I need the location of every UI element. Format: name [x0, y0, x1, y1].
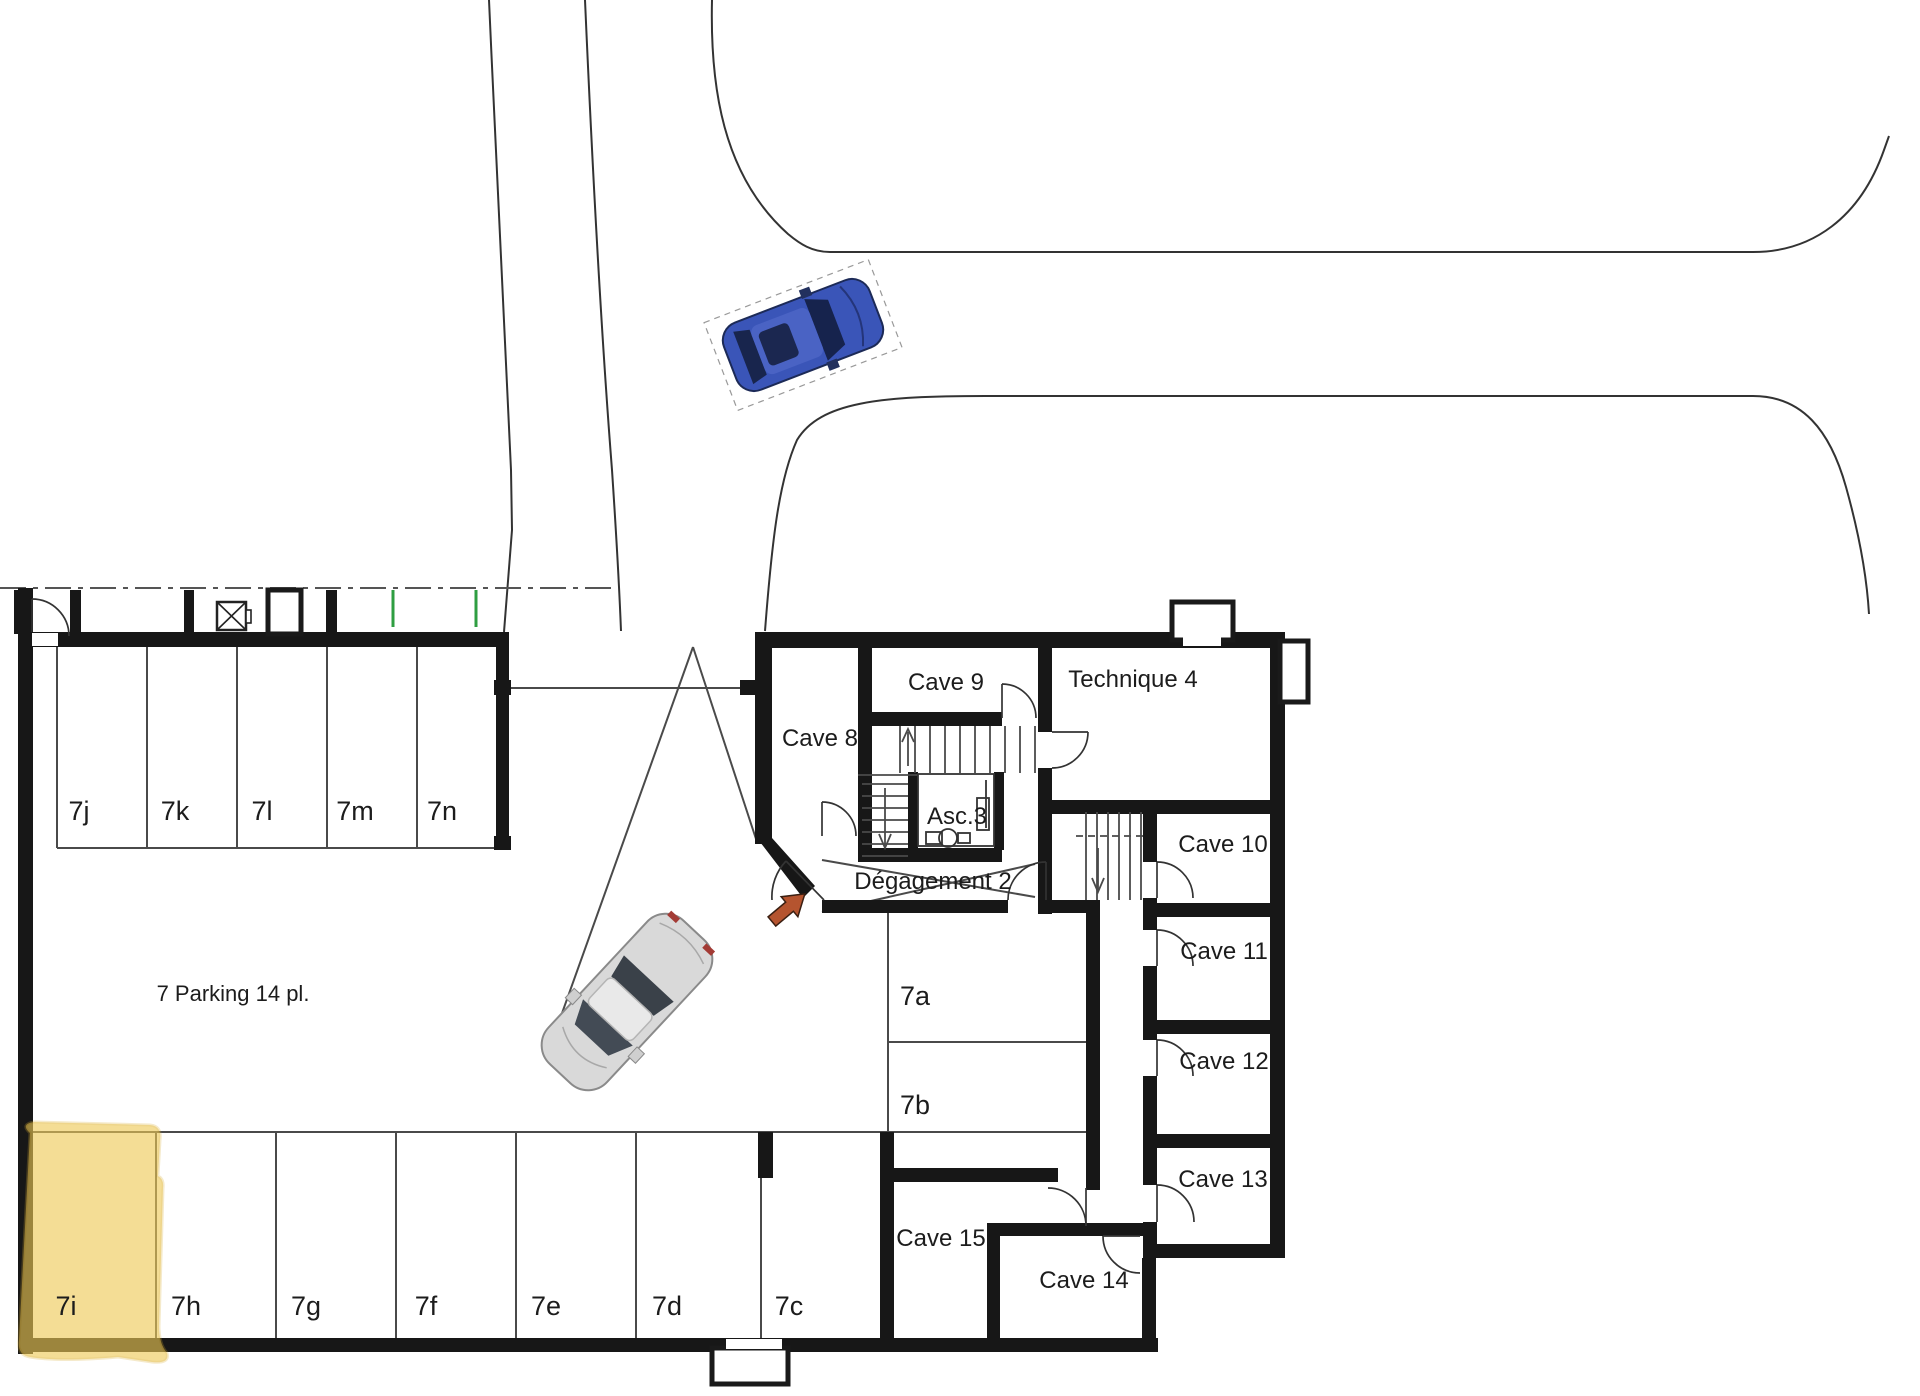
floor-plan-page: 7 Parking 14 pl. 7j 7k 7l 7m 7n 7i 7h 7g… — [0, 0, 1920, 1396]
exterior-duct-box-right — [1280, 641, 1308, 702]
car-blue — [704, 260, 902, 411]
spot-label-7i: 7i — [55, 1291, 76, 1321]
road-lower-edge — [765, 396, 1869, 631]
spot-label-7f: 7f — [415, 1291, 438, 1321]
spot-label-7e: 7e — [531, 1291, 561, 1321]
room-cave-15 — [894, 1182, 987, 1338]
spot-label-7d: 7d — [652, 1291, 682, 1321]
page-title: 7 Parking 14 pl. — [157, 981, 310, 1006]
door-cave15 — [1048, 1188, 1086, 1226]
room-label-asc-3: Asc.3 — [927, 803, 987, 830]
exterior-door-box-bottom — [712, 1348, 788, 1384]
stairs-secondary — [1076, 812, 1148, 900]
room-label-cave-10: Cave 10 — [1178, 831, 1267, 858]
road-upper-edge — [712, 0, 1889, 252]
bottom-door-opening — [726, 1339, 782, 1349]
driveway-left-inner-line — [585, 0, 621, 631]
highlight-spot-7i — [19, 1122, 168, 1362]
room-label-technique-4: Technique 4 — [1068, 666, 1197, 693]
spot-label-7l: 7l — [251, 796, 272, 826]
room-cave-10 — [1157, 814, 1270, 903]
spot-label-7h: 7h — [171, 1291, 201, 1321]
road-lines — [489, 0, 1889, 632]
room-label-degagement-2: Dégagement 2 — [854, 868, 1011, 895]
spot-label-7g: 7g — [291, 1291, 321, 1321]
ramp-line-right — [693, 647, 757, 842]
room-label-cave-11: Cave 11 — [1180, 938, 1268, 965]
spot-label-7k: 7k — [161, 796, 190, 826]
wall-door-box-left — [268, 590, 301, 634]
floor-plan-svg: 7 Parking 14 pl. 7j 7k 7l 7m 7n 7i 7h 7g… — [0, 0, 1920, 1396]
top-door-opening — [1183, 634, 1221, 646]
spot-label-7n: 7n — [427, 796, 457, 826]
car-silver — [525, 898, 729, 1107]
room-label-cave-15: Cave 15 — [896, 1225, 985, 1252]
room-label-cave-14: Cave 14 — [1039, 1267, 1128, 1294]
spot-label-7m: 7m — [336, 796, 374, 826]
room-label-cave-9: Cave 9 — [908, 669, 984, 696]
room-cave-13 — [1157, 1148, 1270, 1244]
topleft-door-opening — [32, 633, 58, 646]
door-topleft — [32, 599, 69, 636]
room-label-cave-12: Cave 12 — [1179, 1048, 1268, 1075]
spot-label-7j: 7j — [68, 796, 89, 826]
spot-label-7c: 7c — [775, 1291, 804, 1321]
electrical-box-icon — [217, 602, 251, 630]
spot-label-7b: 7b — [900, 1090, 930, 1120]
room-cave-11 — [1157, 917, 1270, 1020]
room-label-cave-13: Cave 13 — [1178, 1166, 1267, 1193]
spot-label-7a: 7a — [900, 981, 931, 1011]
driveway-left-outer-line — [489, 0, 512, 632]
room-label-cave-8: Cave 8 — [782, 725, 858, 752]
green-marks — [393, 590, 476, 627]
